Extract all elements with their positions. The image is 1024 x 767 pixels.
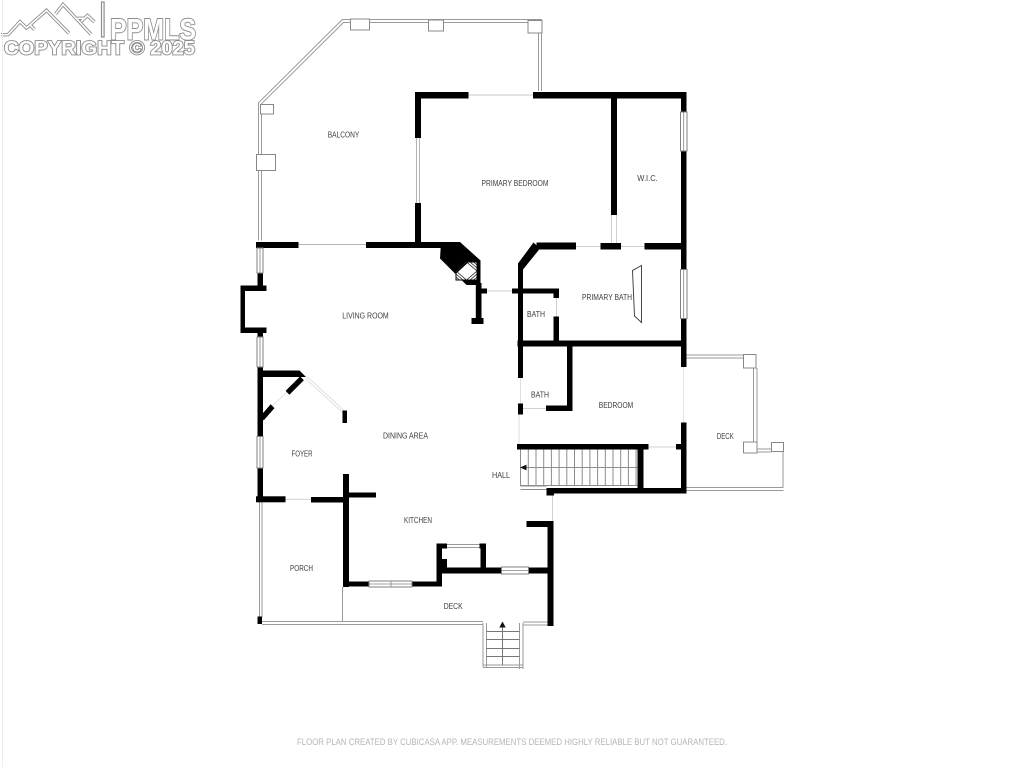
svg-text:BATH: BATH — [527, 310, 545, 319]
svg-text:BALCONY: BALCONY — [328, 131, 360, 140]
svg-text:FLOOR PLAN CREATED BY CUBICASA: FLOOR PLAN CREATED BY CUBICASA APP. MEAS… — [297, 737, 727, 748]
svg-text:DINING AREA: DINING AREA — [383, 432, 429, 441]
svg-text:PORCH: PORCH — [290, 564, 313, 573]
svg-text:COPYRIGHT © 2025: COPYRIGHT © 2025 — [4, 38, 195, 60]
svg-text:DECK: DECK — [444, 602, 464, 611]
svg-text:FOYER: FOYER — [292, 450, 313, 459]
svg-text:PRIMARY BATH: PRIMARY BATH — [582, 293, 632, 302]
svg-text:BEDROOM: BEDROOM — [599, 401, 634, 410]
svg-text:BATH: BATH — [531, 391, 549, 400]
svg-text:DECK: DECK — [717, 432, 735, 441]
svg-text:KITCHEN: KITCHEN — [404, 516, 432, 525]
svg-text:W.I.C.: W.I.C. — [637, 174, 658, 183]
svg-text:PRIMARY BEDROOM: PRIMARY BEDROOM — [482, 179, 549, 188]
svg-text:LIVING ROOM: LIVING ROOM — [342, 312, 389, 321]
svg-text:HALL: HALL — [492, 471, 511, 480]
